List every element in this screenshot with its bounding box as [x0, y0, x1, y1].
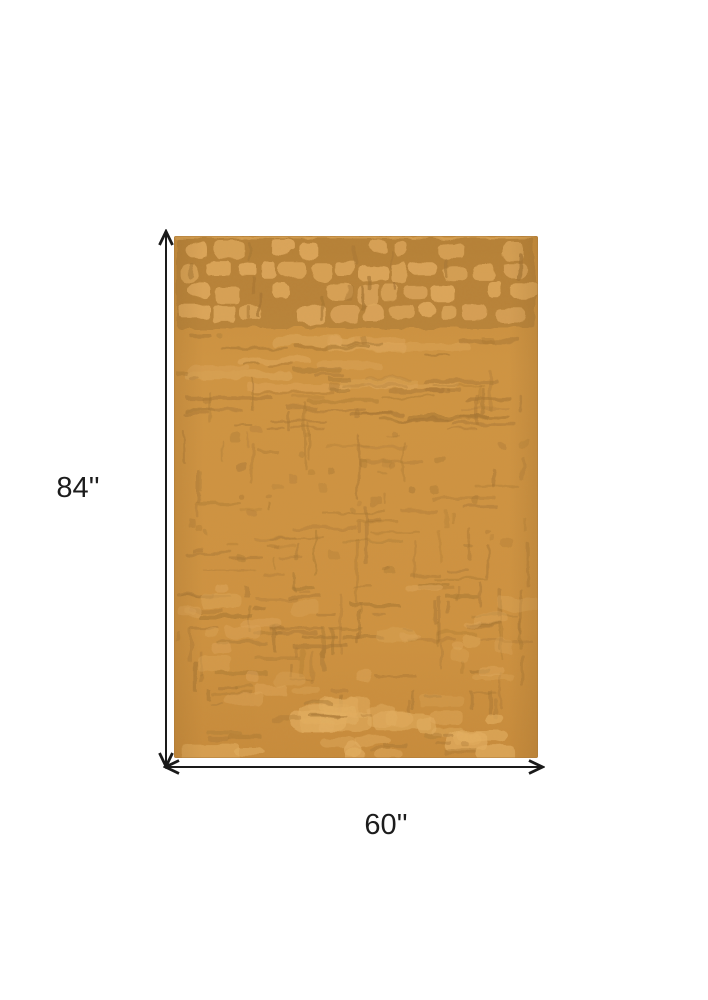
rug-texture: [174, 236, 538, 758]
width-dimension-label: 60'': [344, 808, 428, 842]
width-dimension-arrow: [163, 758, 545, 776]
rug-photo: [174, 236, 538, 758]
height-dimension-arrow: [157, 229, 175, 769]
height-dimension-label: 84'': [36, 471, 120, 505]
product-dimension-figure: 84'' 60'': [0, 0, 708, 1000]
